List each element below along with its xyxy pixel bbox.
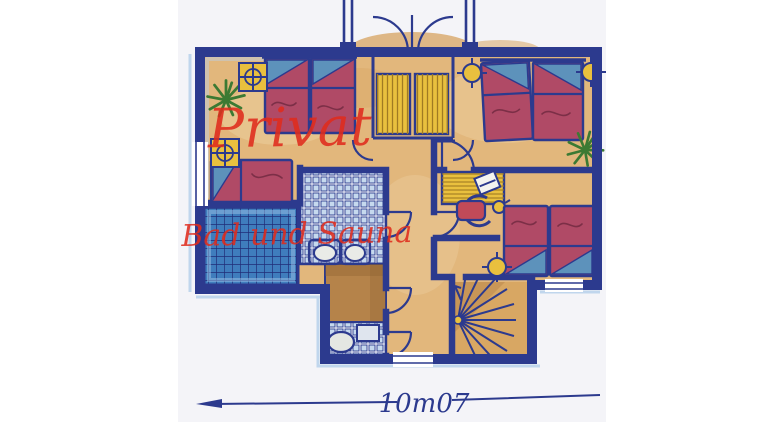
double-bed: [480, 60, 586, 141]
ceiling-light-icon: [239, 63, 267, 91]
label-bad-und-sauna: Bad und Sauna: [180, 215, 413, 254]
window: [192, 142, 208, 206]
entrance-door-panel: [415, 74, 448, 134]
bed: [504, 206, 548, 276]
floor-plan-svg: Privat Bad und Sauna 10m07: [0, 0, 768, 422]
bed: [550, 206, 594, 276]
window: [545, 279, 583, 292]
dimension-text: 10m07: [379, 389, 470, 419]
floor-plan-scan: Privat Bad und Sauna 10m07: [0, 0, 768, 422]
label-privat: Privat: [206, 95, 372, 161]
sauna-bench-area: [325, 264, 386, 322]
window: [393, 352, 433, 367]
entrance-door-panel: [377, 74, 410, 134]
